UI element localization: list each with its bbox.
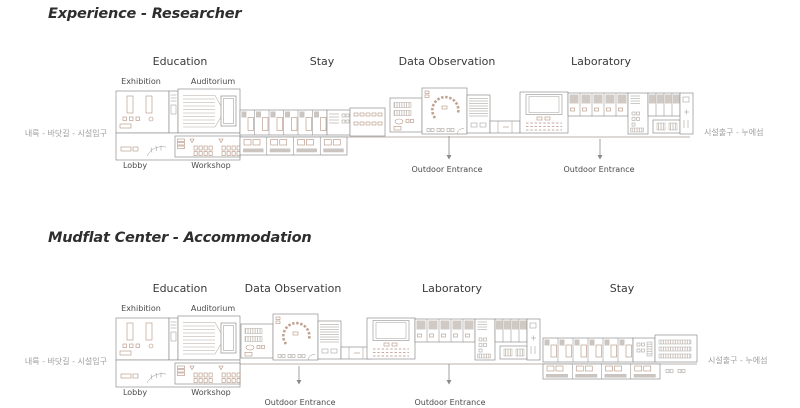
plan2-route-right-label: 시설출구 - 누에섬 xyxy=(708,355,768,366)
floorplan-page: Experience - Researcher Education Stay D… xyxy=(0,0,800,408)
plan2-outdoor-entrance-arrow-1 xyxy=(297,366,302,385)
plan1-route-left-label: 내륙 - 바닷길 - 시설입구 xyxy=(25,128,107,139)
plan2-stay-wing xyxy=(543,335,697,379)
plan1-section-education: Education xyxy=(153,55,208,68)
plan1-room-workshop: Workshop xyxy=(191,161,230,170)
plan2-section-data-observation: Data Observation xyxy=(245,282,342,295)
plan2-room-exhibition: Exhibition xyxy=(121,304,161,313)
plan1-drawing xyxy=(116,88,693,160)
plan1-room-auditorium: Auditorium xyxy=(191,77,235,86)
plan1-section-data-observation: Data Observation xyxy=(399,55,496,68)
plan2-outdoor-entrance-label-1: Outdoor Entrance xyxy=(264,398,335,407)
plan1-stay-wing xyxy=(240,108,385,155)
plan2-drawing xyxy=(116,314,697,387)
plan2-section-laboratory: Laboratory xyxy=(422,282,482,295)
plan1-room-lobby: Lobby xyxy=(123,161,147,170)
plan1-section-laboratory: Laboratory xyxy=(571,55,631,68)
plan2-section-stay: Stay xyxy=(610,282,635,295)
plan2-room-workshop: Workshop xyxy=(191,388,230,397)
plan1-outdoor-entrance-arrow-1 xyxy=(447,136,452,160)
plan1-room-exhibition: Exhibition xyxy=(121,77,161,86)
plan2-route-left-label: 내륙 - 바닷길 - 시설입구 xyxy=(25,356,107,367)
plan1-outdoor-entrance-label-1: Outdoor Entrance xyxy=(411,165,482,174)
plan1-route-right-label: 시설출구 - 누에섬 xyxy=(704,127,764,138)
plan2-room-lobby: Lobby xyxy=(123,388,147,397)
plan2-title: Mudflat Center - Accommodation xyxy=(48,230,311,246)
plan2-outdoor-entrance-arrow-2 xyxy=(447,364,452,385)
plan2-outdoor-entrance-label-2: Outdoor Entrance xyxy=(414,398,485,407)
plan2-room-auditorium: Auditorium xyxy=(191,304,235,313)
plan2-section-education: Education xyxy=(153,282,208,295)
plan1-outdoor-entrance-label-2: Outdoor Entrance xyxy=(563,165,634,174)
plan1-section-stay: Stay xyxy=(310,55,335,68)
plan1-title: Experience - Researcher xyxy=(48,6,241,22)
plan1-outdoor-entrance-arrow-2 xyxy=(598,139,603,160)
